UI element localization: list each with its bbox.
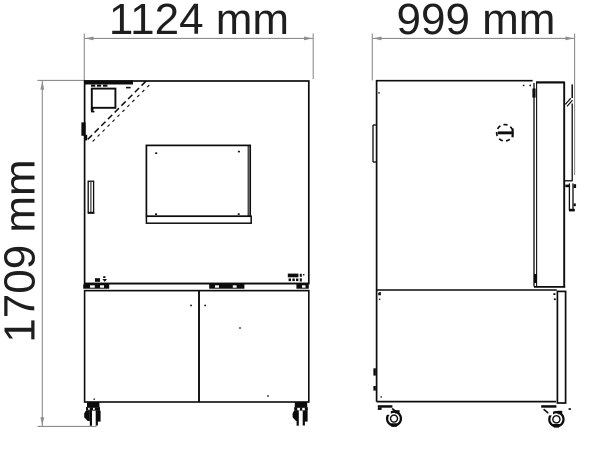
svg-text:1124 mm: 1124 mm [109,0,289,44]
svg-text:1709 mm: 1709 mm [0,159,45,342]
svg-text:999 mm: 999 mm [397,0,556,44]
